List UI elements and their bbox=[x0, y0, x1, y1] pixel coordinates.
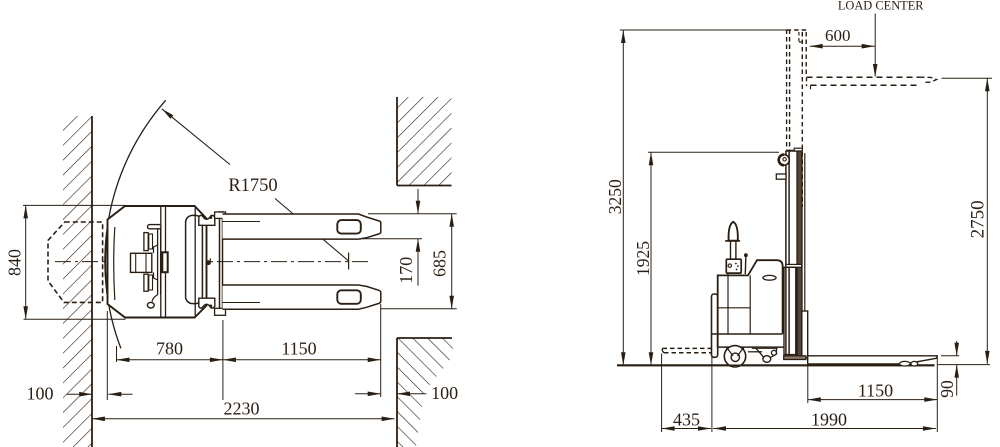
svg-text:170: 170 bbox=[396, 257, 416, 284]
svg-text:2750: 2750 bbox=[967, 200, 988, 238]
svg-text:100: 100 bbox=[431, 383, 458, 403]
svg-text:1925: 1925 bbox=[633, 241, 653, 276]
svg-text:90: 90 bbox=[937, 380, 957, 398]
svg-text:685: 685 bbox=[430, 250, 450, 277]
svg-text:LOAD CENTER: LOAD CENTER bbox=[838, 0, 924, 13]
svg-text:780: 780 bbox=[156, 338, 183, 358]
svg-text:1150: 1150 bbox=[858, 381, 893, 401]
svg-text:R1750: R1750 bbox=[228, 176, 277, 196]
svg-text:1150: 1150 bbox=[281, 338, 316, 358]
svg-text:2230: 2230 bbox=[224, 398, 260, 418]
svg-text:1990: 1990 bbox=[811, 409, 847, 429]
svg-text:435: 435 bbox=[673, 409, 700, 429]
svg-text:600: 600 bbox=[825, 26, 851, 45]
svg-text:840: 840 bbox=[5, 249, 25, 276]
svg-text:100: 100 bbox=[27, 383, 54, 403]
svg-text:3250: 3250 bbox=[605, 179, 625, 214]
